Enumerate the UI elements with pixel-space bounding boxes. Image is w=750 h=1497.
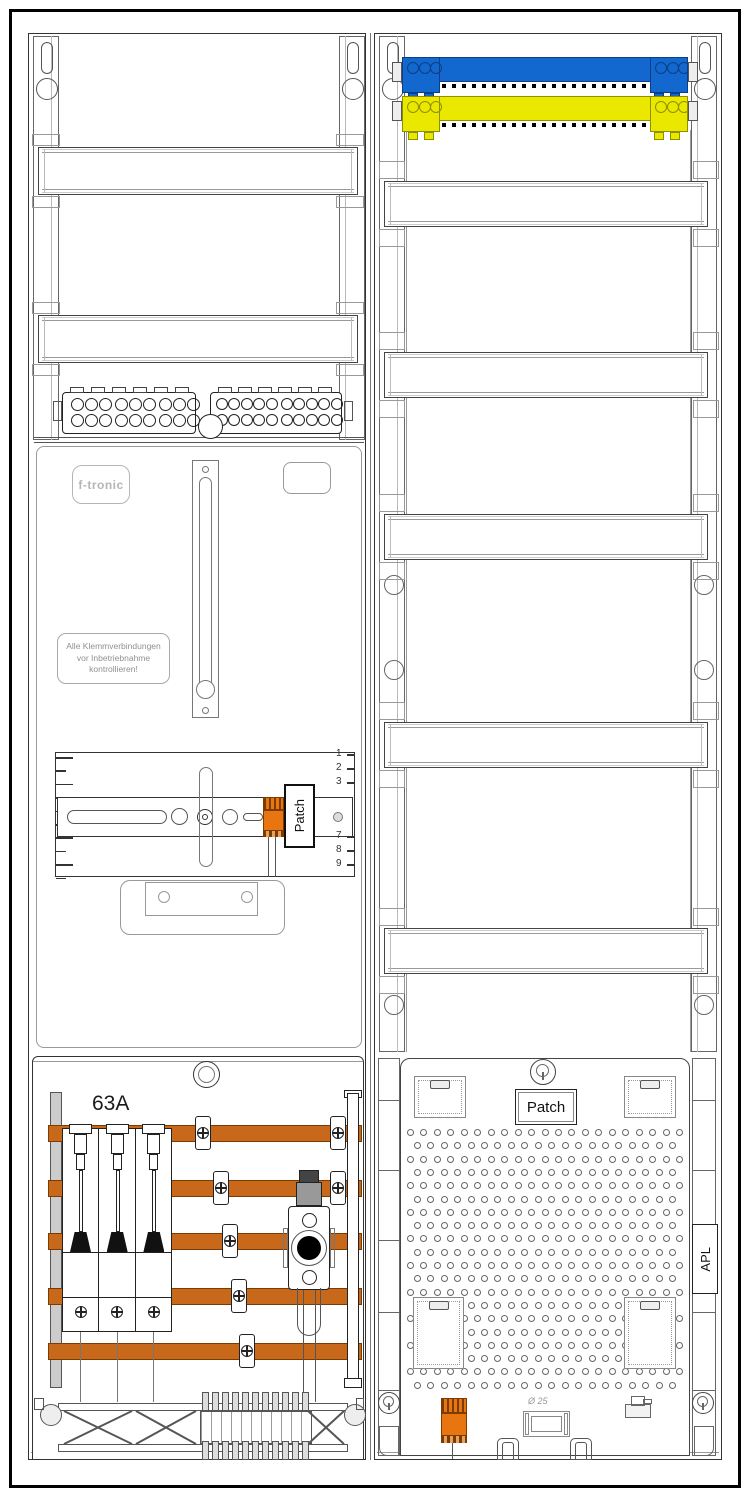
busbar-tab [424, 132, 434, 140]
terminal-eye [302, 1213, 317, 1228]
plate-hole [568, 1289, 575, 1296]
plate-hole [582, 1156, 589, 1163]
rail-bracket [379, 161, 405, 179]
patch-tag-inner-frame: Patch [518, 1092, 574, 1122]
plate-hole [468, 1275, 475, 1282]
plate-hole [575, 1302, 582, 1309]
plate-hole [454, 1249, 461, 1256]
plate-hole [468, 1355, 475, 1362]
rail-bracket [379, 976, 405, 994]
warning-line: vor Inbetriebnahme [77, 653, 150, 664]
ruler-number: 9 [336, 858, 342, 869]
plate-hole [589, 1142, 596, 1149]
plate-hole [508, 1382, 515, 1389]
plate-hole [562, 1249, 569, 1256]
rail-bracket [32, 134, 60, 146]
busbar-body [402, 96, 688, 121]
line [388, 765, 704, 766]
line [56, 864, 73, 866]
plate-hole [521, 1329, 528, 1336]
plate-hole [468, 1329, 475, 1336]
din-rail [38, 315, 358, 363]
warning-line: kontrollieren! [89, 664, 138, 675]
plate-hole [629, 1382, 636, 1389]
plate-hole [535, 1302, 542, 1309]
terminal-hole [85, 398, 98, 411]
comb-tooth [302, 1441, 309, 1460]
line [388, 186, 704, 187]
line [378, 1100, 400, 1101]
plate-hole [468, 1142, 475, 1149]
line [388, 1403, 390, 1410]
rail-bracket [379, 400, 405, 418]
circle [419, 62, 431, 74]
plate-hole [474, 1342, 481, 1349]
plate-hole [434, 1209, 441, 1216]
channel-hole [36, 78, 58, 100]
plate-hole [609, 1315, 616, 1322]
plate-hole [663, 1156, 670, 1163]
line [42, 357, 354, 358]
terminal-bolt-hole [297, 1236, 321, 1260]
plate-hole [535, 1196, 542, 1203]
line [701, 724, 702, 766]
plate-hole [589, 1249, 596, 1256]
busbar-clip [392, 62, 402, 82]
rail-bracket [693, 229, 719, 247]
line [225, 1240, 235, 1242]
busbar-clip [688, 101, 698, 121]
plate-hole [589, 1275, 596, 1282]
line [388, 354, 704, 355]
rail-bracket [379, 332, 405, 350]
comb-tooth [272, 1441, 279, 1460]
plate-hole [535, 1382, 542, 1389]
comb-tooth [282, 1441, 289, 1460]
plate-hole [669, 1196, 676, 1203]
terminal-tab [112, 387, 126, 393]
plate-hole [468, 1196, 475, 1203]
plate-hole [407, 1156, 414, 1163]
corner-tab [379, 1426, 399, 1456]
plate-hole [441, 1196, 448, 1203]
line [347, 864, 355, 866]
drawing-paint-layer: 123789 [0, 0, 750, 1497]
rail-bracket [693, 908, 719, 926]
plate-hole [582, 1182, 589, 1189]
plate-hole [501, 1342, 508, 1349]
plate-hole [582, 1209, 589, 1216]
plate-hole [562, 1169, 569, 1176]
plate-hole [494, 1329, 501, 1336]
line [216, 1187, 226, 1189]
plate-hole [636, 1156, 643, 1163]
busbar-clip [392, 101, 402, 121]
plate-hole [515, 1289, 522, 1296]
plate-hole [676, 1156, 683, 1163]
line [33, 1061, 363, 1062]
plate-hole [562, 1196, 569, 1203]
line [388, 221, 704, 222]
busbar-dashes [442, 123, 648, 127]
plate-hole [615, 1329, 622, 1336]
plate-hole [241, 891, 253, 903]
rail-bracket [693, 332, 719, 350]
line [370, 33, 371, 1460]
line [388, 395, 704, 396]
plate-hole [535, 1329, 542, 1336]
u-bracket-inner [502, 1442, 514, 1460]
plate-hole [575, 1249, 582, 1256]
plate-hole [441, 1275, 448, 1282]
plate-hole [481, 1222, 488, 1229]
brand-label: f-tronic [78, 478, 123, 492]
adjustment-slot [199, 477, 212, 689]
plate-hole [636, 1209, 643, 1216]
terminal-hole [143, 398, 156, 411]
line [234, 1295, 244, 1297]
terminal-clip [344, 401, 353, 421]
line [56, 851, 66, 853]
busbar-holder [347, 1093, 359, 1385]
plate-hole [427, 1382, 434, 1389]
plate-hole [481, 1382, 488, 1389]
busbar-clip [688, 62, 698, 82]
terminal-tab [91, 387, 105, 393]
plate-hole [622, 1156, 629, 1163]
terminal-tab [258, 387, 272, 393]
line [62, 1297, 172, 1298]
circle [430, 62, 442, 74]
line [34, 442, 364, 443]
plate-hole [515, 1315, 522, 1322]
line [702, 1403, 704, 1410]
plate-hole [629, 1169, 636, 1176]
rail-bracket [693, 494, 719, 512]
line [692, 1100, 716, 1101]
plate-hole [515, 1209, 522, 1216]
line [388, 762, 704, 763]
plate-hole [589, 1196, 596, 1203]
terminal-tab [278, 387, 292, 393]
end-pin [333, 812, 343, 822]
plate-hole [629, 1196, 636, 1203]
line [56, 837, 73, 839]
comb-tooth [202, 1392, 209, 1411]
plate-hole [454, 1382, 461, 1389]
line [347, 754, 355, 756]
plate-hole [515, 1342, 522, 1349]
plate-hole [555, 1289, 562, 1296]
line [701, 183, 702, 225]
plate-hole [468, 1169, 475, 1176]
plate-hole [676, 1342, 683, 1349]
plate-hole [481, 1355, 488, 1362]
terminal-eye [302, 1270, 317, 1285]
plate-hole [542, 1342, 549, 1349]
line [42, 149, 354, 150]
crossbar-hole [171, 808, 188, 825]
line [388, 357, 704, 358]
terminal-hole [266, 398, 278, 410]
plate-hole [434, 1156, 441, 1163]
plate-hole [468, 1249, 475, 1256]
busbar-body [402, 57, 688, 82]
line [42, 192, 354, 193]
fuse-stem [116, 1170, 120, 1232]
duct-end [525, 1413, 529, 1435]
channel-hole [342, 78, 364, 100]
plate-hole [636, 1182, 643, 1189]
line [42, 152, 354, 153]
line [388, 968, 704, 969]
bolt-body [296, 1182, 322, 1206]
line [390, 724, 391, 766]
plate-hole [542, 1129, 549, 1136]
plate-hole [508, 1222, 515, 1229]
line [390, 516, 391, 558]
plate-hole [158, 891, 170, 903]
line [351, 317, 352, 361]
line [149, 1311, 159, 1313]
fuse-handle-stem [74, 1134, 87, 1154]
plate-hole [535, 1169, 542, 1176]
rail-bracket [693, 400, 719, 418]
comb-tooth [232, 1392, 239, 1411]
plate-hole [602, 1382, 609, 1389]
patch-tag-left: Patch [284, 784, 315, 848]
line [388, 554, 704, 555]
rail-bracket [693, 562, 719, 580]
plate-hole [582, 1129, 589, 1136]
line [275, 837, 276, 877]
plate-hole [488, 1209, 495, 1216]
fuse-handle-stem [76, 1154, 85, 1170]
plate-hole [575, 1329, 582, 1336]
plate-hole [642, 1196, 649, 1203]
plate-hole [481, 1169, 488, 1176]
patch-terminal-teeth [263, 831, 284, 837]
line [42, 317, 354, 318]
line [62, 1252, 172, 1253]
plate-hole [575, 1196, 582, 1203]
plate-hole [582, 1262, 589, 1269]
plate-hole [602, 1249, 609, 1256]
line [542, 1072, 544, 1080]
crossbar-hole [222, 809, 238, 825]
rail-bracket [693, 161, 719, 179]
plate-hole [568, 1156, 575, 1163]
plate-hole [407, 1289, 414, 1296]
terminal-tab [238, 387, 252, 393]
terminal-tab [318, 387, 332, 393]
line [378, 1390, 400, 1391]
plate-hole [562, 1382, 569, 1389]
plate-hole [542, 1209, 549, 1216]
plate-hole [461, 1156, 468, 1163]
comb-tooth [272, 1392, 279, 1411]
plate-hole [528, 1289, 535, 1296]
plate-hole [434, 1289, 441, 1296]
comb-tooth [222, 1392, 229, 1411]
fuse-handle [69, 1124, 92, 1134]
comb-tooth [252, 1392, 259, 1411]
ruler-number: 7 [336, 830, 342, 841]
plate-hole [461, 1182, 468, 1189]
brand-badge: f-tronic [72, 465, 130, 504]
plate-hole [629, 1222, 636, 1229]
channel-slot [699, 42, 711, 74]
plate-hole [575, 1169, 582, 1176]
channel-hole [384, 995, 404, 1015]
plate-hole [488, 1262, 495, 1269]
plate-hole [501, 1289, 508, 1296]
line [56, 757, 73, 759]
line [378, 1170, 400, 1171]
plate-hole [582, 1342, 589, 1349]
comb-tooth [292, 1392, 299, 1411]
plate-hole [501, 1156, 508, 1163]
patch-terminal-body [263, 810, 284, 831]
fuse-handle-stem [147, 1134, 160, 1154]
plate-hole [676, 1129, 683, 1136]
busbar-dashes [442, 84, 648, 88]
plate-hole [555, 1129, 562, 1136]
plate-hole [636, 1262, 643, 1269]
line [347, 782, 355, 784]
terminal-hole [241, 414, 253, 426]
line [388, 183, 704, 184]
u-bracket-inner [575, 1442, 587, 1460]
plate-hole [447, 1289, 454, 1296]
plate-hole [548, 1329, 555, 1336]
plate-hole [454, 1169, 461, 1176]
plate-hole [636, 1129, 643, 1136]
holder-cap [344, 1378, 362, 1388]
comb-tooth [282, 1392, 289, 1411]
rail-bracket [379, 494, 405, 512]
patch-terminal-top [441, 1398, 467, 1413]
cutout-slot [640, 1080, 660, 1089]
plate-hole [622, 1289, 629, 1296]
plate-hole [461, 1209, 468, 1216]
plate-hole [535, 1222, 542, 1229]
screw-hole [202, 707, 209, 714]
terminal-hole [143, 414, 156, 427]
line [56, 878, 66, 880]
crossbar-slot [243, 813, 263, 821]
patch-terminal-body [441, 1413, 467, 1436]
plate-hole [542, 1315, 549, 1322]
cutout-slot [640, 1301, 660, 1310]
plate-hole [609, 1182, 616, 1189]
plate-hole [589, 1222, 596, 1229]
patch-label-right: Patch [527, 1099, 565, 1116]
fuse-rating-label: 63A [92, 1092, 129, 1116]
plate-hole [535, 1355, 542, 1362]
cable-gland [198, 414, 223, 439]
wire-loop [297, 1288, 321, 1336]
comb-tooth [222, 1441, 229, 1460]
plate-hole [602, 1302, 609, 1309]
line [117, 1332, 118, 1402]
plate-hole [461, 1289, 468, 1296]
plate-hole [609, 1156, 616, 1163]
patch-terminal-top [263, 797, 284, 810]
rail-bracket [32, 302, 60, 314]
plate-hole [542, 1235, 549, 1242]
plate-hole [622, 1209, 629, 1216]
corner-tab [694, 1426, 714, 1456]
line [198, 1132, 208, 1134]
plate-hole [481, 1249, 488, 1256]
plate-hole [441, 1249, 448, 1256]
plate-hole [528, 1262, 535, 1269]
plate-hole [636, 1289, 643, 1296]
drawing-shape [628, 1301, 672, 1365]
plate-hole [562, 1275, 569, 1282]
comb-tooth [212, 1441, 219, 1460]
plate-hole [515, 1262, 522, 1269]
line [378, 1312, 400, 1313]
plate-hole [542, 1289, 549, 1296]
line [690, 130, 691, 1052]
plate-hole [589, 1355, 596, 1362]
terminal-tab [70, 387, 84, 393]
circle [407, 62, 419, 74]
plate-hole [669, 1249, 676, 1256]
apl-label: APL [698, 1247, 713, 1272]
terminal-hole [99, 398, 112, 411]
line [34, 437, 364, 438]
busbar-tab [670, 132, 680, 140]
plate-hole [407, 1209, 414, 1216]
fuse-handle [142, 1124, 165, 1134]
line [42, 320, 354, 321]
plate-hole [528, 1342, 535, 1349]
plate-hole [555, 1209, 562, 1216]
slot-end-hole [196, 680, 215, 699]
fuse-stem [79, 1170, 83, 1232]
plate-hole [508, 1249, 515, 1256]
plate-hole [656, 1169, 663, 1176]
plate-hole [461, 1262, 468, 1269]
plate-hole [676, 1262, 683, 1269]
plate-hole [508, 1196, 515, 1203]
channel-hole [384, 660, 404, 680]
fuse-handle-stem [113, 1154, 122, 1170]
plate-hole [663, 1182, 670, 1189]
rail-bracket [379, 562, 405, 580]
terminal-hole [331, 398, 343, 410]
plate-hole [461, 1129, 468, 1136]
rail-bracket [693, 976, 719, 994]
plate-hole [427, 1169, 434, 1176]
comb-tooth [292, 1441, 299, 1460]
rail-bracket [336, 134, 364, 146]
plate-hole [414, 1249, 421, 1256]
plate-hole [515, 1156, 522, 1163]
plate-hole [602, 1169, 609, 1176]
plate-hole [663, 1262, 670, 1269]
circle [655, 101, 667, 113]
line [388, 519, 704, 520]
clip-base [625, 1404, 651, 1418]
plate-hole [481, 1329, 488, 1336]
line [347, 768, 355, 770]
plate-hole [542, 1262, 549, 1269]
comb-tooth [202, 1441, 209, 1460]
